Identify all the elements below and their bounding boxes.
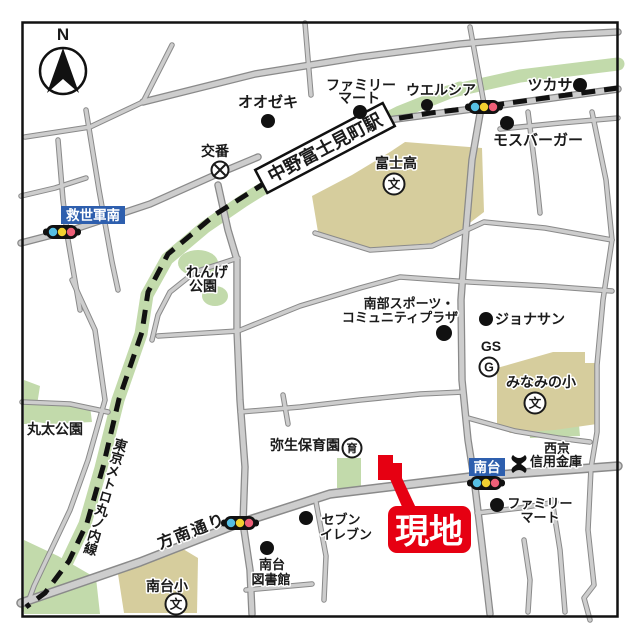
mos-burger-dot <box>500 116 514 130</box>
library-dot <box>260 541 274 555</box>
familymart-south-dot <box>490 498 504 512</box>
traffic-light-icon <box>43 225 81 239</box>
minamidai-elem-label: 南台小 <box>146 578 188 594</box>
seikyo-shinkin-label-2: 信用金庫 <box>530 454 582 469</box>
traffic-light-icon <box>467 476 505 490</box>
location-map: 東京メトロ丸ノ内線 中野富士見町駅 方南通り オオゼキ ファミリー マート ウエ… <box>0 0 640 640</box>
maruta-park-label: 丸太公園 <box>26 421 83 437</box>
minamidai-school-icon: 文 <box>166 594 187 615</box>
familymart-north-dot <box>353 105 367 119</box>
compass-north-label: N <box>57 25 69 44</box>
welcia-label: ウエルシア <box>406 82 476 98</box>
kyuseigun-minami-plate: 救世軍南 <box>61 206 125 224</box>
fuji-high-school-icon: 文 <box>384 174 405 195</box>
oozeki-dot <box>261 114 275 128</box>
svg-text:文: 文 <box>170 597 183 612</box>
familymart-south-label-1: ファミリー <box>507 496 572 511</box>
nursery-icon: 育 <box>343 439 362 458</box>
jonathan-label: ジョナサン <box>495 311 565 327</box>
seven-eleven-label-2: イレブン <box>320 527 372 542</box>
koban-label: 交番 <box>201 143 230 159</box>
library-label-1: 南台 <box>259 557 285 572</box>
gas-station-icon: G <box>480 358 499 377</box>
welcia-dot <box>421 99 433 111</box>
kyuseigun-minami-label: 救世軍南 <box>66 207 120 223</box>
svg-text:文: 文 <box>388 177 401 192</box>
site-label: 現地 <box>395 513 463 551</box>
nanbu-plaza-dot <box>436 325 452 341</box>
familymart-south-label-2: マート <box>520 510 559 525</box>
minamino-elem-grounds <box>497 352 597 433</box>
svg-text:文: 文 <box>529 396 542 411</box>
oozeki-label: オオゼキ <box>238 93 298 111</box>
yayoi-green-area <box>337 458 361 488</box>
gas-station-label: GS <box>481 338 501 354</box>
minamino-elem-label: みなみの小 <box>506 374 576 390</box>
traffic-light-icon <box>221 516 259 530</box>
tsukasa-dot <box>573 78 587 92</box>
library-label-2: 図書館 <box>251 572 290 587</box>
yayoi-nursery-label: 弥生保育園 <box>270 437 340 453</box>
svg-text:育: 育 <box>347 441 358 455</box>
tsukasa-label: ツカサ <box>527 77 572 94</box>
minamino-school-icon: 文 <box>525 393 546 414</box>
familymart-north-label-2: マート <box>338 90 380 106</box>
seven-eleven-dot <box>299 511 313 525</box>
nanbu-plaza-label-2: コミュニティプラザ <box>342 310 458 325</box>
jonathan-dot <box>479 312 493 326</box>
map-canvas: 東京メトロ丸ノ内線 中野富士見町駅 方南通り オオゼキ ファミリー マート ウエ… <box>0 0 640 640</box>
seven-eleven-label-1: セブン <box>321 512 360 527</box>
nanbu-plaza-label-1: 南部スポーツ・ <box>364 296 455 311</box>
svg-text:G: G <box>484 361 494 375</box>
mos-burger-label: モスバーガー <box>493 132 583 149</box>
minamidai-plate: 南台 <box>469 458 505 476</box>
minamidai-label: 南台 <box>474 459 501 475</box>
renge-park-label-2: 公園 <box>189 278 217 294</box>
fuji-high-label: 富士高 <box>375 155 417 171</box>
koban-icon <box>212 162 229 179</box>
traffic-light-icon <box>465 100 503 114</box>
